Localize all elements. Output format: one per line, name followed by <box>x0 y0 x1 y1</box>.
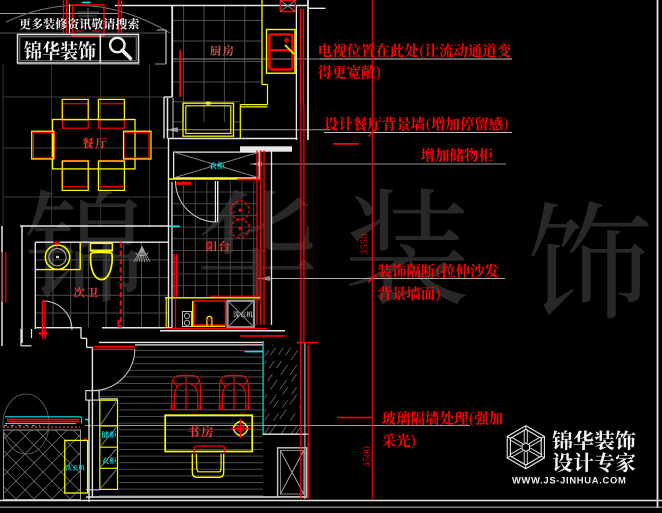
svg-text:WWW.JS-JINHUA.COM: WWW.JS-JINHUA.COM <box>512 475 627 486</box>
